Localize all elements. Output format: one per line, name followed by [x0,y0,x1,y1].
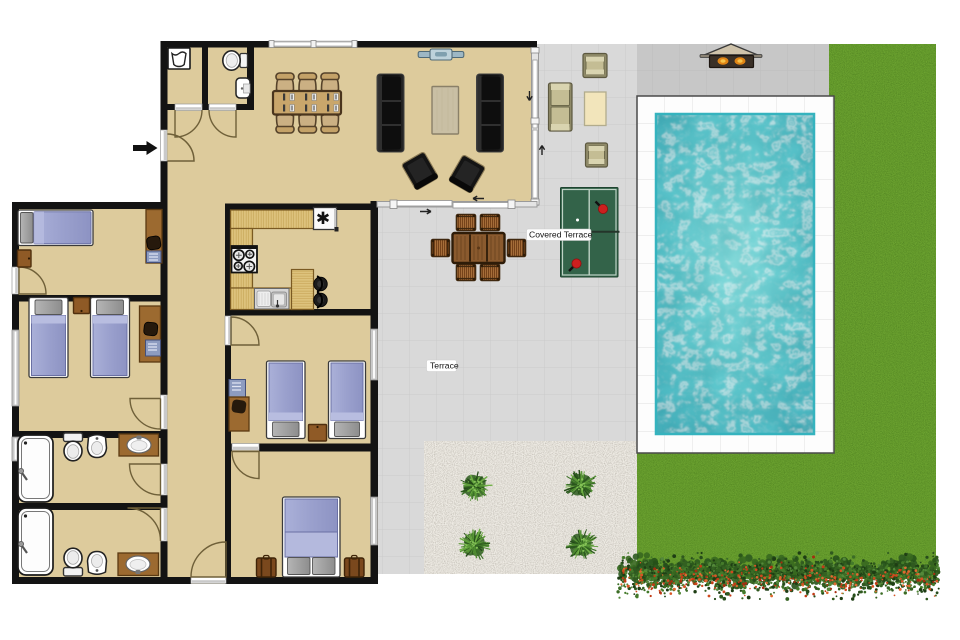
svg-text:Covered Terrace: Covered Terrace [529,230,593,240]
svg-text:✱: ✱ [316,209,330,228]
svg-text:Terrace: Terrace [430,361,459,371]
